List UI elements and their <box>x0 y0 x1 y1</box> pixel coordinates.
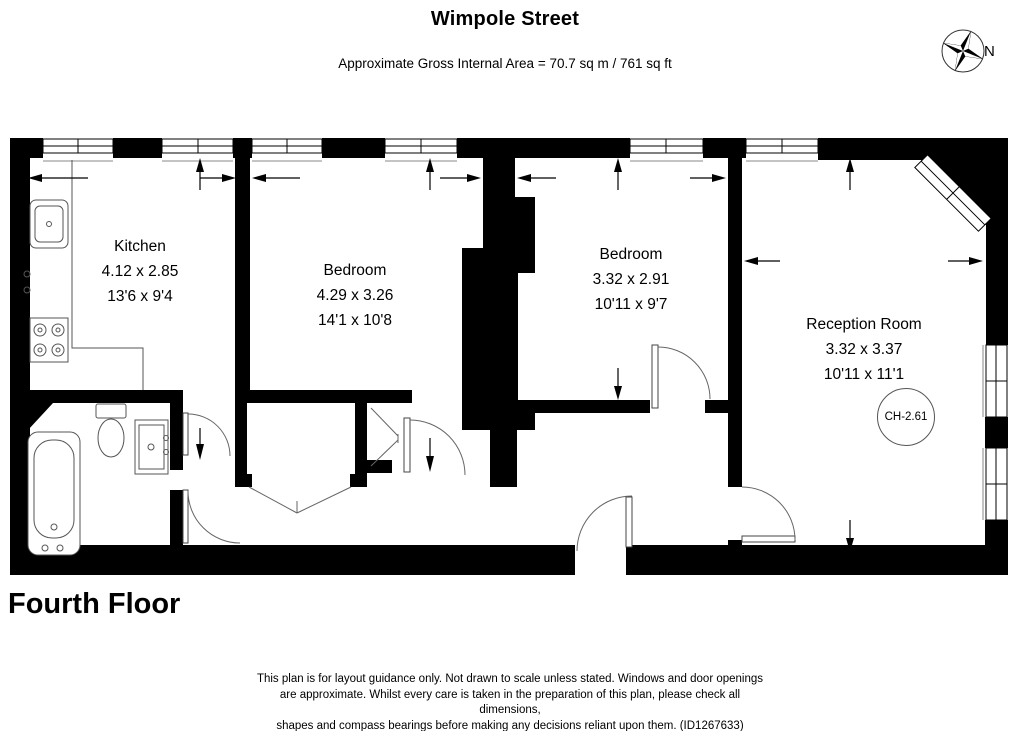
ceiling-height-badge: CH-2.61 <box>877 388 935 446</box>
bedroom2-door <box>652 345 710 408</box>
room-name: Kitchen <box>102 234 179 259</box>
toilet <box>96 404 126 457</box>
disclaimer-line: This plan is for layout guidance only. N… <box>255 672 765 688</box>
reception-door <box>742 487 795 542</box>
page-title: Wimpole Street <box>431 8 579 31</box>
room-name: Bedroom <box>317 258 394 283</box>
gross-internal-area: Approximate Gross Internal Area = 70.7 s… <box>338 56 672 71</box>
window-top-6 <box>746 139 818 161</box>
disclaimer-line: are approximate. Whilst every care is ta… <box>255 688 765 719</box>
entrance-door <box>577 496 632 551</box>
room-size-imperial: 13'6 x 9'4 <box>102 284 179 309</box>
kitchen-label: Kitchen 4.12 x 2.85 13'6 x 9'4 <box>102 234 179 309</box>
window-top-1 <box>43 139 113 161</box>
window-top-4 <box>385 139 457 161</box>
compass-icon <box>936 24 991 79</box>
room-size-imperial: 14'1 x 10'8 <box>317 308 394 333</box>
window-top-5 <box>630 139 703 161</box>
window-top-2 <box>162 139 233 161</box>
floorplan-page: Wimpole Street Approximate Gross Interna… <box>0 0 1020 731</box>
disclaimer: This plan is for layout guidance only. N… <box>255 672 765 731</box>
bedroom2-label: Bedroom 3.32 x 2.91 10'11 x 9'7 <box>593 242 670 317</box>
room-size-metric: 4.12 x 2.85 <box>102 259 179 284</box>
window-right-2 <box>983 448 1007 520</box>
room-name: Bedroom <box>593 242 670 267</box>
hob <box>30 318 68 362</box>
bathroom-sink <box>135 420 169 474</box>
reception-room-label: Reception Room 3.32 x 3.37 10'11 x 11'1 <box>806 312 921 387</box>
hall-door <box>183 490 240 543</box>
closet2-bifold-doors <box>371 408 398 466</box>
kitchen-sink <box>30 200 68 248</box>
floor-name: Fourth Floor <box>8 588 180 621</box>
compass-north-label: N <box>984 43 995 60</box>
window-right-1 <box>983 345 1007 417</box>
room-size-imperial: 10'11 x 9'7 <box>593 292 670 317</box>
bedroom1-door <box>404 418 465 475</box>
closet1-bifold-doors <box>249 487 351 513</box>
room-name: Reception Room <box>806 312 921 337</box>
room-size-metric: 4.29 x 3.26 <box>317 283 394 308</box>
interior-walls <box>10 158 742 553</box>
room-size-imperial: 10'11 x 11'1 <box>806 362 921 387</box>
disclaimer-line: shapes and compass bearings before makin… <box>255 719 765 731</box>
bedroom1-label: Bedroom 4.29 x 3.26 14'1 x 10'8 <box>317 258 394 333</box>
window-top-3 <box>252 139 322 161</box>
room-size-metric: 3.32 x 3.37 <box>806 337 921 362</box>
bathtub <box>28 432 80 555</box>
room-size-metric: 3.32 x 2.91 <box>593 267 670 292</box>
bathroom-door <box>183 413 230 456</box>
